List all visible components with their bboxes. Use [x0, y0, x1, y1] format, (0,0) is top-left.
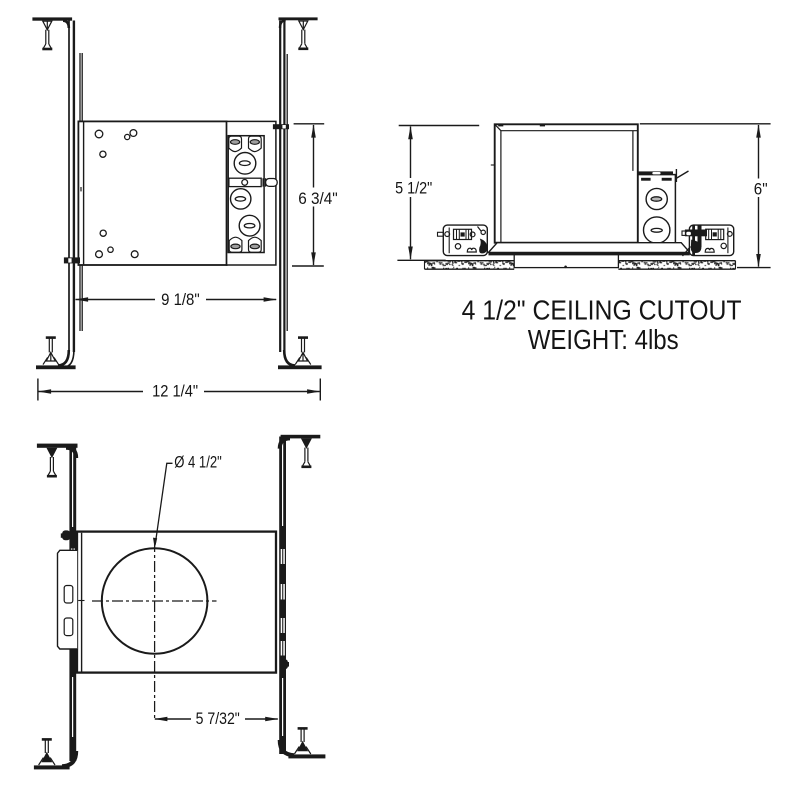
svg-text:9 1/8": 9 1/8": [161, 291, 200, 309]
svg-text:5 1/2": 5 1/2": [395, 179, 432, 197]
svg-text:5 7/32": 5 7/32": [196, 710, 240, 728]
svg-text:6 3/4": 6 3/4": [298, 190, 338, 208]
svg-text:6": 6": [754, 180, 768, 198]
svg-text:Ø 4 1/2": Ø 4 1/2": [174, 453, 222, 471]
svg-text:12 1/4": 12 1/4": [152, 383, 198, 401]
svg-text:4 1/2" CEILING CUTOUT: 4 1/2" CEILING CUTOUT: [462, 295, 742, 326]
svg-text:WEIGHT: 4lbs: WEIGHT: 4lbs: [528, 324, 679, 355]
